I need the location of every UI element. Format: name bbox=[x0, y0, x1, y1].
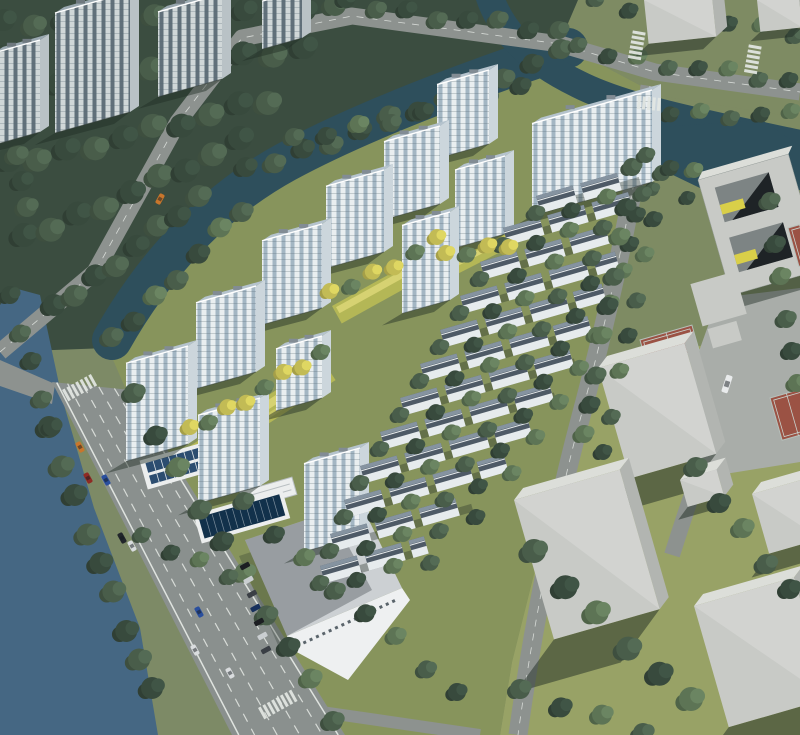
aerial-scene bbox=[0, 0, 800, 735]
aerial-render bbox=[0, 0, 800, 735]
